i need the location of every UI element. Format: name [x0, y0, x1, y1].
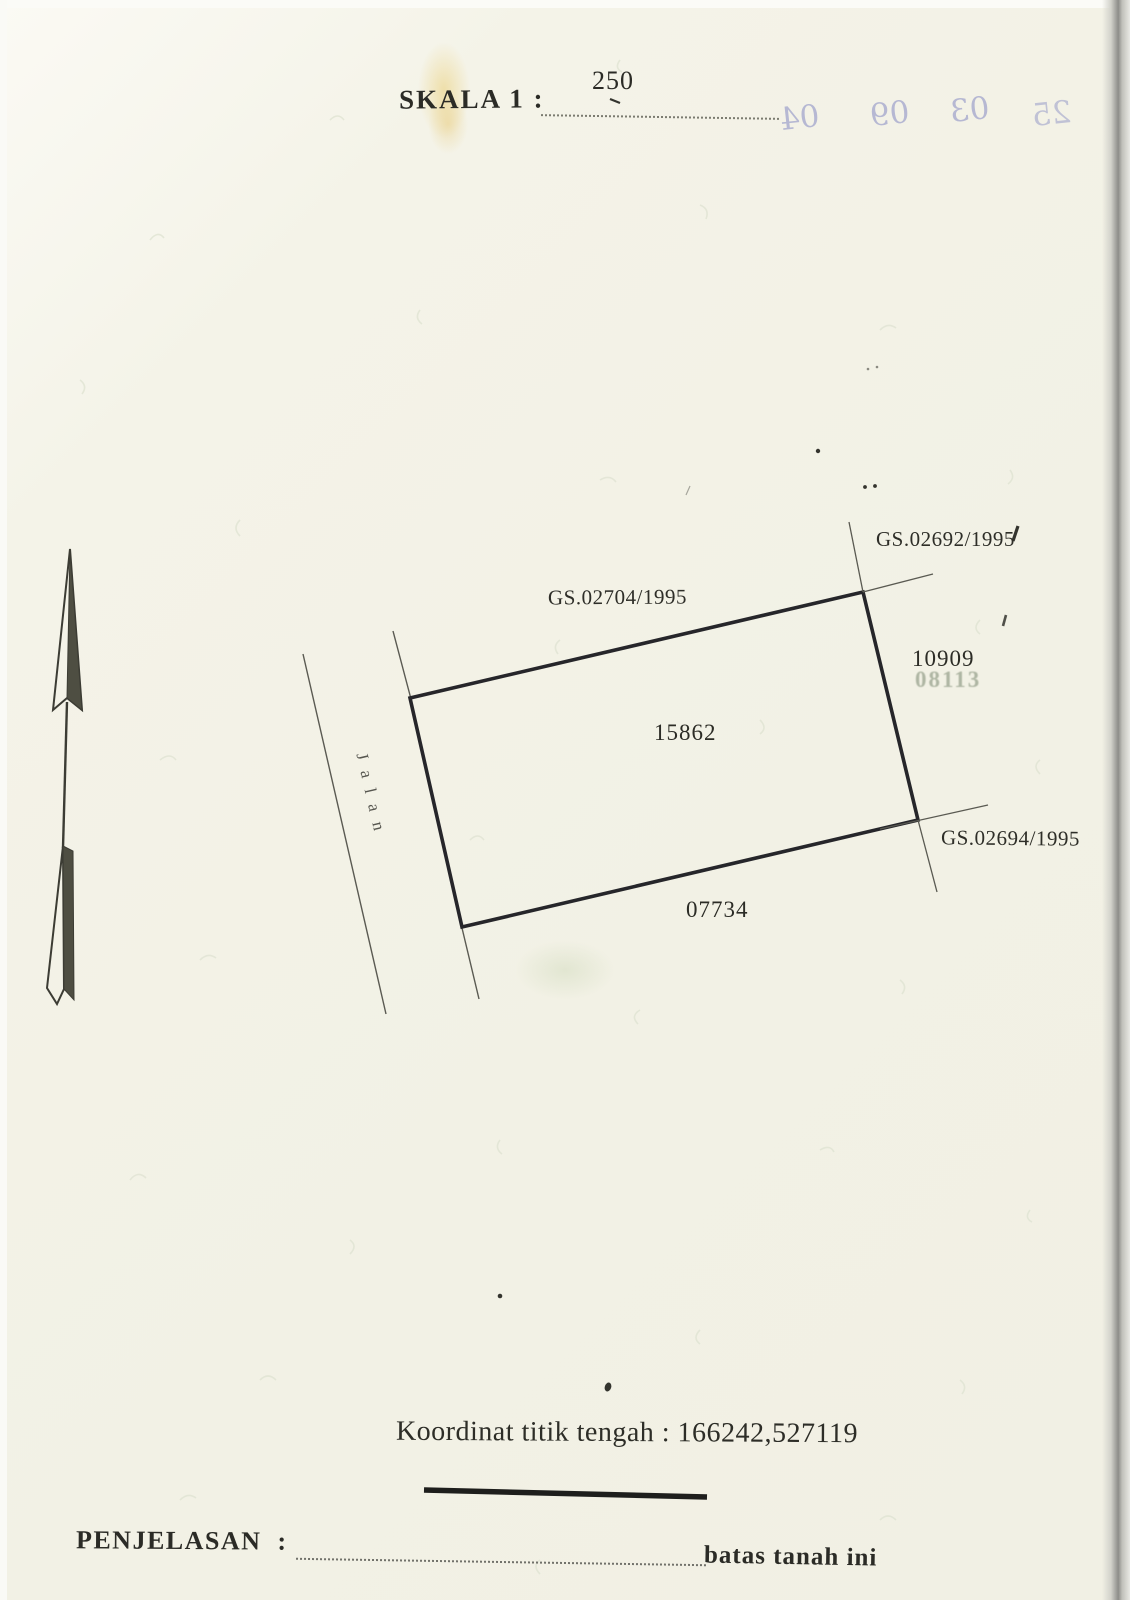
parcel-outline: [410, 592, 918, 927]
bleedthrough-handwriting: 04: [780, 100, 819, 136]
boundary-label-southeast: GS.02694/1995: [941, 825, 1080, 851]
scanned-document-page: SKALA 1 : 250 04 09 03 25 GS.02704/1995 …: [0, 0, 1130, 1600]
koordinat-label: Koordinat titik tengah :: [396, 1416, 670, 1448]
koordinat-value: 166242,527119: [677, 1417, 858, 1449]
bleedthrough-handwriting: 25: [1032, 96, 1071, 132]
survey-linework: [0, 0, 1130, 1600]
scale-label: SKALA 1 :: [399, 83, 545, 115]
bleedthrough-handwriting: 03: [950, 92, 989, 128]
paper-texture: [80, 60, 1040, 1574]
center-coordinate-line: Koordinat titik tengah : 166242,527119: [396, 1416, 858, 1450]
separator-rule: [424, 1490, 707, 1497]
ink-specks: [498, 366, 879, 1393]
penjelasan-label: PENJELASAN :: [76, 1525, 288, 1556]
parcel-number-south: 07734: [686, 897, 749, 923]
batas-label: batas tanah ini: [704, 1541, 878, 1572]
boundary-label-north: GS.02704/1995: [548, 585, 687, 611]
scale-value: 250: [592, 66, 634, 96]
parcel-number-east-faint: 08113: [915, 667, 981, 693]
bleedthrough-handwriting: 09: [870, 96, 909, 132]
boundary-label-northeast: GS.02692/1995: [876, 527, 1015, 552]
north-arrow-icon: [47, 549, 82, 1004]
scan-right-edge: [1102, 0, 1130, 1600]
parcel-number-center: 15862: [654, 720, 717, 746]
